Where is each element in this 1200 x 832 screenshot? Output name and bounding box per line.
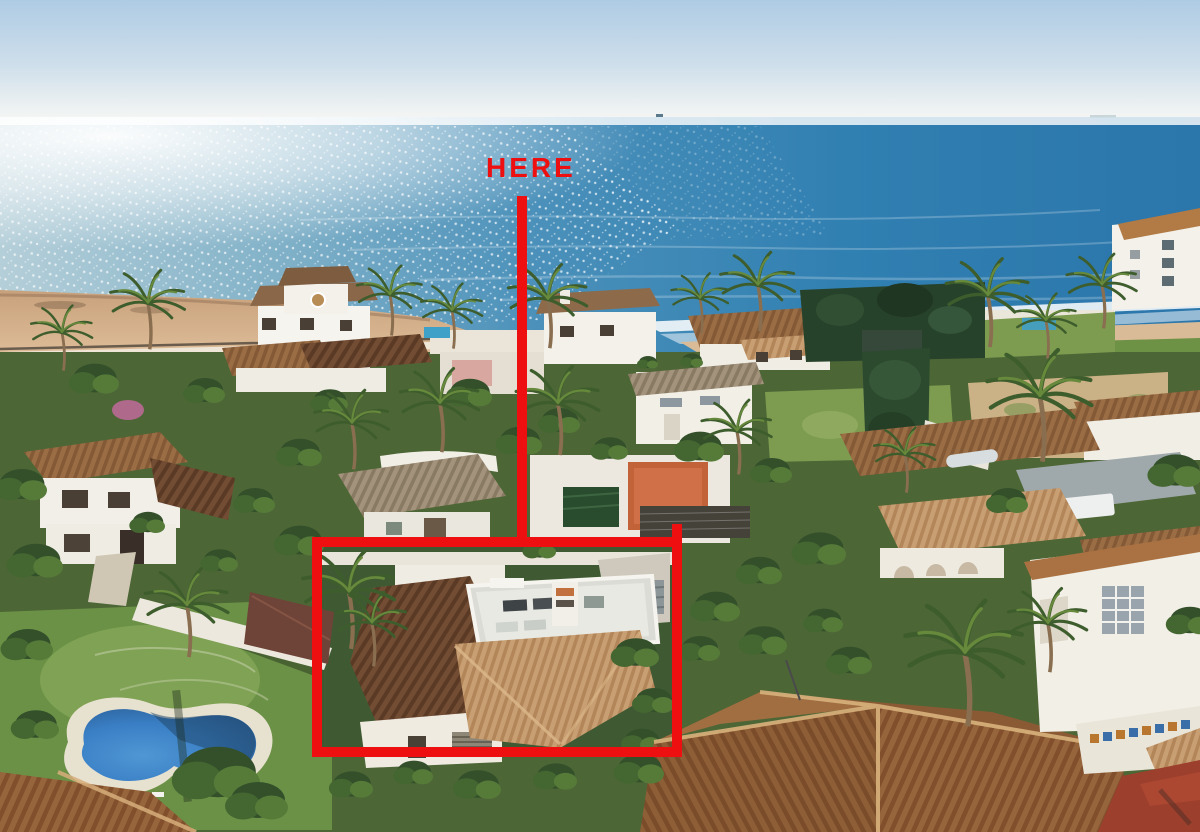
dark-hedge-fence <box>800 282 985 362</box>
aerial-photo: HERE <box>0 0 1200 832</box>
white-villa-center <box>628 362 764 444</box>
beachfront-house-2 <box>536 288 660 364</box>
apartment-block <box>1112 208 1200 310</box>
pointer-line <box>517 196 527 547</box>
here-label: HERE <box>486 152 576 184</box>
target-property-frame <box>312 537 682 757</box>
sky <box>0 0 1200 120</box>
pergola-orange-roof <box>530 455 750 543</box>
target-frame-corner-nub <box>672 524 682 538</box>
distant-ship <box>656 114 663 117</box>
